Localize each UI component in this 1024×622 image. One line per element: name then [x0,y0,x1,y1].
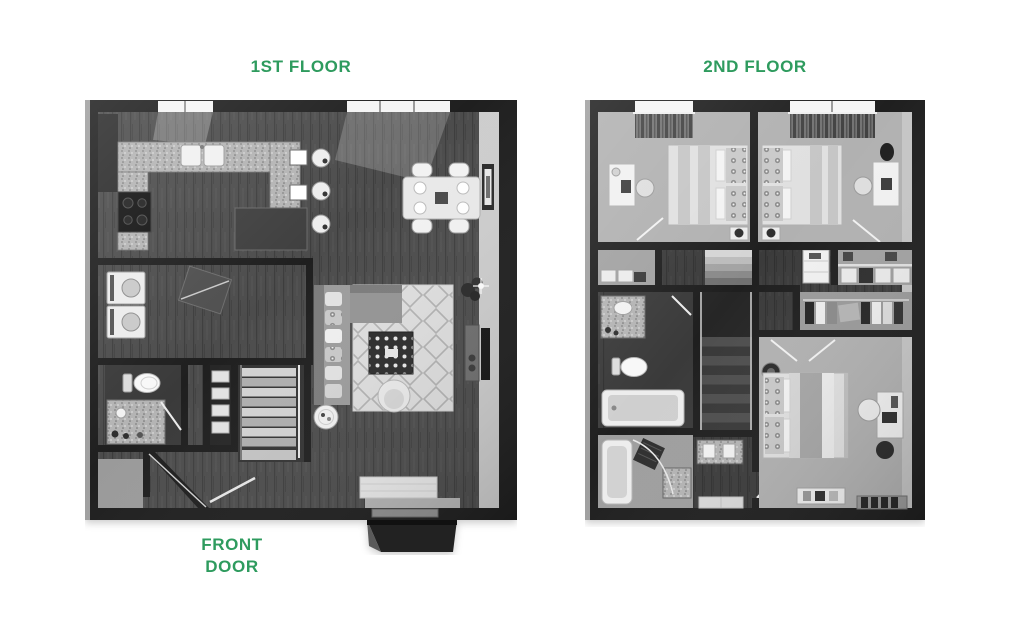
hall-bathroom [601,292,693,428]
front-door [372,509,438,517]
bath-counter [663,468,691,498]
lower-stair-flight [702,337,750,432]
desk-chair [858,399,880,421]
master-bedroom [759,337,907,509]
kitchen-window [153,101,213,145]
bathroom-vanity [601,296,645,338]
desk [609,164,635,206]
soaking-tub-icon [602,440,632,504]
curtains [635,112,693,138]
bathtub-icon [602,390,684,426]
tv-icon [481,328,490,380]
upper-stair-flight [705,250,752,285]
entry-step [365,498,460,508]
desk-chair [854,177,872,195]
bed [762,145,842,225]
coat-closet [98,459,143,508]
first-floor-title: 1ST FLOOR [85,58,517,75]
accent-chair [876,441,894,459]
bedroom-1 [598,101,750,242]
linen-closet [210,365,231,445]
toilet-icon [123,374,160,393]
curtains [790,112,875,138]
first-floor-building [85,100,517,552]
staircase [238,365,304,462]
papasan-chair [378,380,410,412]
dryer-icon [107,306,145,338]
second-floor-building [585,100,925,520]
stairwell [700,292,752,433]
second-floor-title: 2ND FLOOR [585,58,925,75]
bedroom1-window [635,101,693,112]
ottoman [369,332,413,374]
washer-icon [107,272,145,304]
bed [763,373,848,458]
second-floor-plan [585,100,925,527]
nightstand [730,227,748,240]
toilet-icon [612,358,647,377]
bench [857,496,907,509]
stove-icon [118,192,151,232]
hall-cabinet [803,250,829,283]
double-vanity [697,440,743,464]
left-wall-face [585,100,590,520]
side-table [314,405,338,429]
floorplan-page: 1ST FLOOR 2ND FLOOR FRONT DOOR [0,0,1024,622]
kitchen-cabinets [98,114,118,192]
master-bathroom [598,435,693,508]
front-door-mat [360,477,437,498]
desk-chair [636,179,654,197]
front-porch [367,520,457,552]
tv-console [465,325,490,381]
dresser [797,488,845,504]
hall-mat [699,497,743,508]
bathroom-vanity [107,400,165,444]
bar-stools [312,149,330,233]
wall-picture [482,164,494,210]
desk [877,392,903,438]
plant-icon [880,143,894,161]
bathroom [105,365,181,445]
bed [668,145,748,225]
shelf-closet [838,250,912,285]
walk-in-closet [800,292,912,330]
bedroom-2 [758,101,902,242]
nightstand [762,227,780,240]
left-wall-face [85,100,90,520]
kitchen-island [235,208,307,250]
laptop-icon [882,412,897,423]
first-floor-plan [85,100,517,555]
